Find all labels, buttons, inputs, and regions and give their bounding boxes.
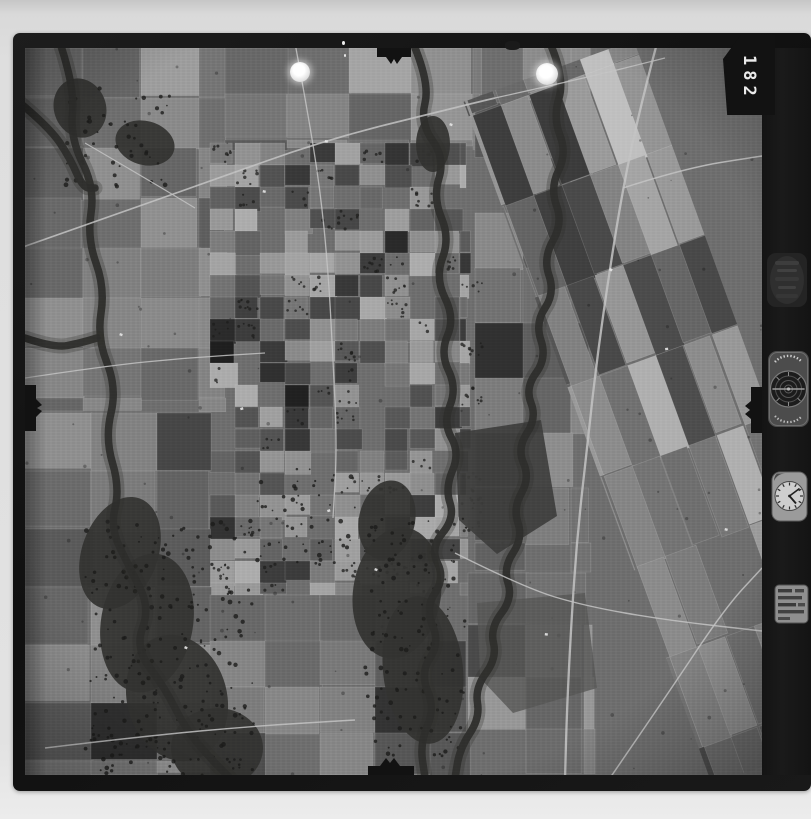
fiducial-notch-top: [377, 48, 411, 65]
aerial-photograph: [25, 48, 762, 775]
fiducial-notch-left: [25, 385, 43, 431]
fiducial-dot-right: [536, 63, 558, 85]
film-blemish-smudge: [505, 41, 520, 50]
frame-number: 182: [713, 55, 785, 99]
aerial-photo-image: [25, 48, 762, 775]
clock-icon: [771, 471, 808, 526]
film-blemish-speck: [342, 41, 345, 45]
fiducial-dot-left: [290, 62, 310, 82]
fiducial-notch-right: [743, 387, 762, 433]
scanned-aerial-film-page: 182: [0, 0, 811, 819]
fiducial-notch-bottom: [368, 755, 414, 775]
altimeter-icon: [767, 350, 810, 432]
film-blemish-speck: [344, 54, 346, 57]
status-panel-icon: [766, 252, 808, 312]
data-plate-icon: [774, 584, 809, 628]
film-frame: 182: [13, 33, 811, 791]
